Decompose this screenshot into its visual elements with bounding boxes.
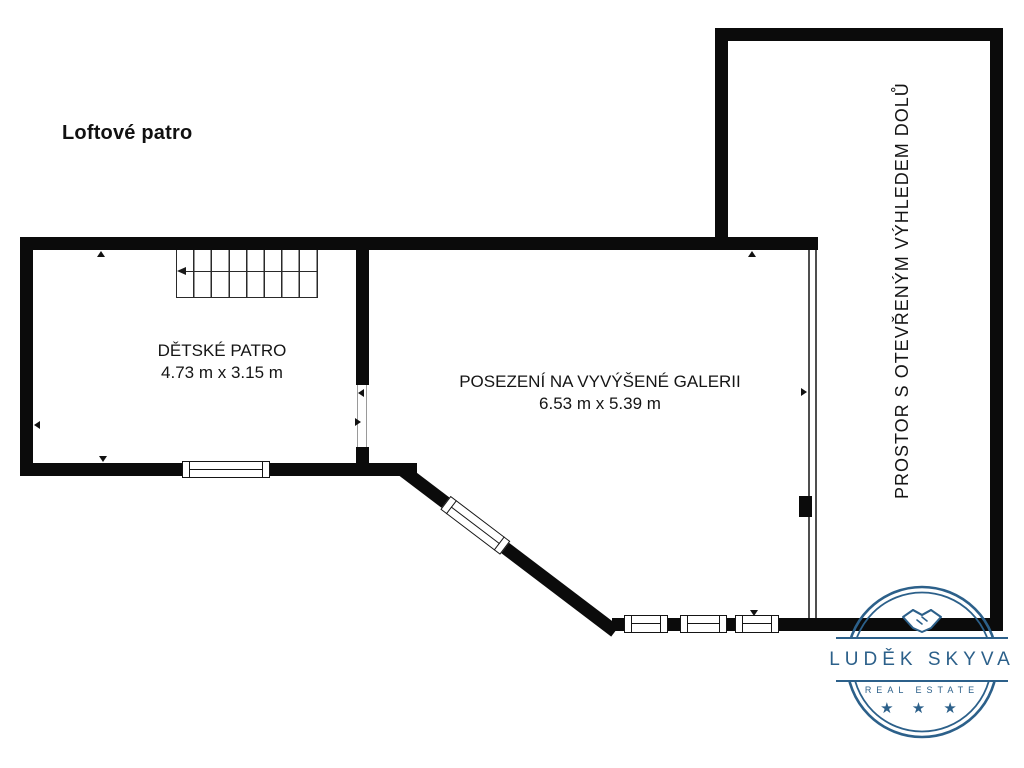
logo-name: LUDĚK SKYVA: [829, 649, 1015, 671]
room-label-prostor: PROSTOR S OTEVŘENÝM VÝHLEDEM DOLŮ: [892, 139, 914, 499]
floor-plan: Loftové patro DĚTSKÉ PATRO 4.73 m x 3.15…: [0, 0, 1024, 768]
staircase: [176, 250, 318, 298]
window-diagonal: [440, 496, 510, 555]
wall-marker-icon: [750, 610, 758, 616]
handshake-icon: [903, 610, 941, 632]
room-name: POSEZENÍ NA VYVÝŠENÉ GALERII: [420, 371, 780, 393]
railing-line: [808, 250, 810, 618]
wall-marker-icon: [99, 456, 107, 462]
window: [735, 615, 779, 633]
agency-logo: LUDĚK SKYVA REAL ESTATE ★ ★ ★: [840, 577, 1004, 747]
room-name: DĚTSKÉ PATRO: [92, 340, 352, 362]
stairs-direction-arrow-icon: [184, 271, 317, 272]
door-marker-icon: [358, 389, 364, 397]
window: [680, 615, 727, 633]
railing-post: [799, 496, 812, 517]
wall-marker-icon: [748, 251, 756, 257]
window: [624, 615, 668, 633]
wall-left: [20, 237, 33, 476]
room-dimensions: 6.53 m x 5.39 m: [420, 393, 780, 415]
wall-marker-icon: [34, 421, 40, 429]
railing-line: [815, 250, 817, 618]
room-dimensions: 4.73 m x 3.15 m: [92, 362, 352, 384]
door-marker-icon: [355, 418, 361, 426]
room-label-posezeni: POSEZENÍ NA VYVÝŠENÉ GALERII 6.53 m x 5.…: [420, 371, 780, 415]
wall-open-space-right: [990, 28, 1003, 631]
door-opening-edge: [366, 385, 367, 447]
logo-band: LUDĚK SKYVA: [836, 637, 1008, 682]
page-title: Loftové patro: [62, 122, 192, 145]
wall-open-space-top: [715, 28, 1003, 41]
wall-diagonal: [396, 463, 619, 637]
wall-left-room-right-lower: [356, 447, 369, 476]
wall-open-space-left: [715, 28, 728, 250]
logo-stars-icon: ★ ★ ★: [840, 699, 1004, 717]
logo-subtitle: REAL ESTATE: [840, 685, 1004, 695]
room-label-detske-patro: DĚTSKÉ PATRO 4.73 m x 3.15 m: [92, 340, 352, 384]
window: [182, 461, 270, 478]
wall-marker-icon: [97, 251, 105, 257]
wall-main-top: [20, 237, 818, 250]
wall-marker-icon: [801, 388, 807, 396]
wall-left-room-right-upper: [356, 237, 369, 385]
